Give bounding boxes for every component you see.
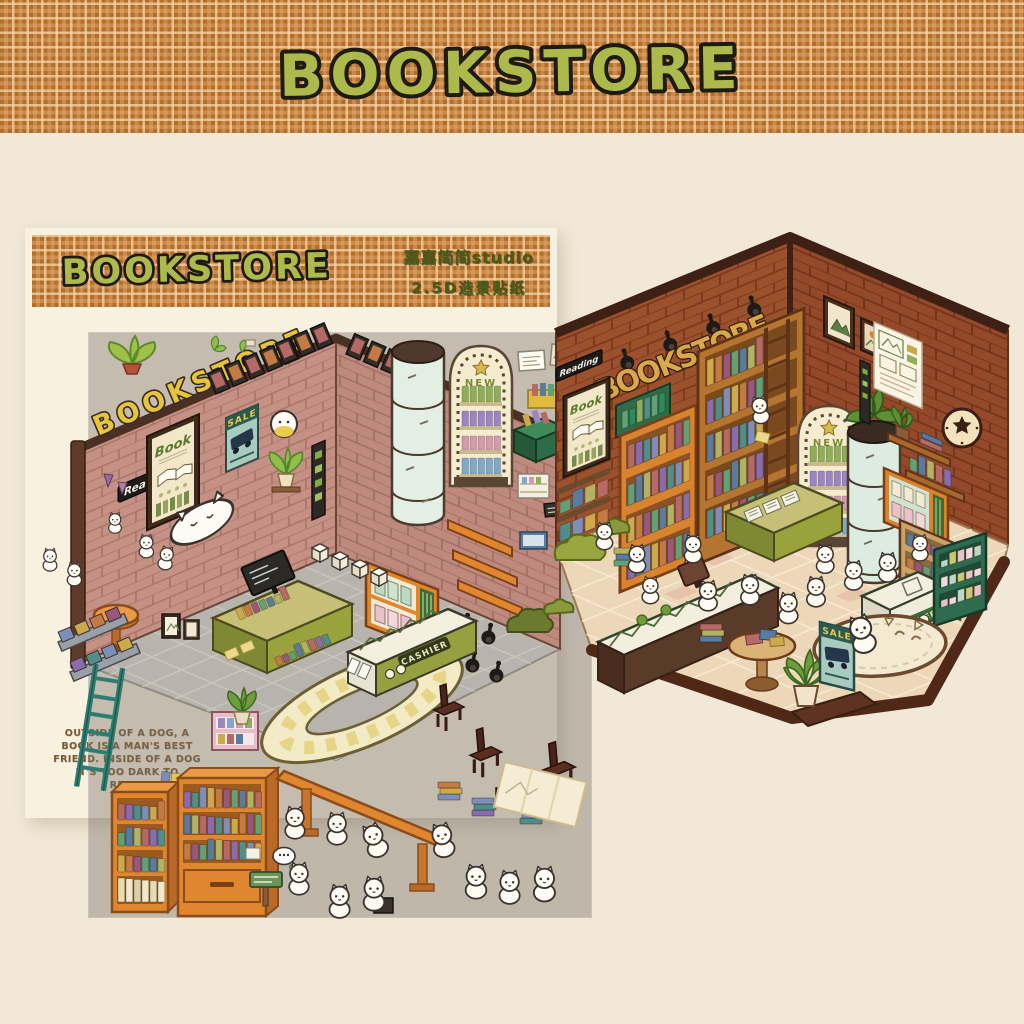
wall-clock bbox=[943, 409, 981, 447]
map-sticker bbox=[494, 762, 587, 827]
duck-sticker bbox=[271, 411, 297, 437]
wall-banner bbox=[860, 360, 870, 424]
green-rack bbox=[934, 533, 986, 626]
illustration-layer: BOOKSTORE Reading Book bbox=[0, 0, 1024, 1024]
ladder-sticker bbox=[77, 664, 123, 791]
column-cylinder bbox=[392, 341, 444, 525]
leaf-sticker bbox=[109, 336, 155, 374]
new-arch-shelf: NEW bbox=[450, 346, 512, 486]
sale-standee: SALE bbox=[820, 622, 854, 690]
bookshelf-narrow bbox=[112, 782, 178, 912]
product-image: BOOKSTORE BOOKSTORE 嘉嘉简简studio 2.5D造景贴纸 … bbox=[0, 0, 1024, 1024]
wall-banner bbox=[312, 440, 325, 520]
